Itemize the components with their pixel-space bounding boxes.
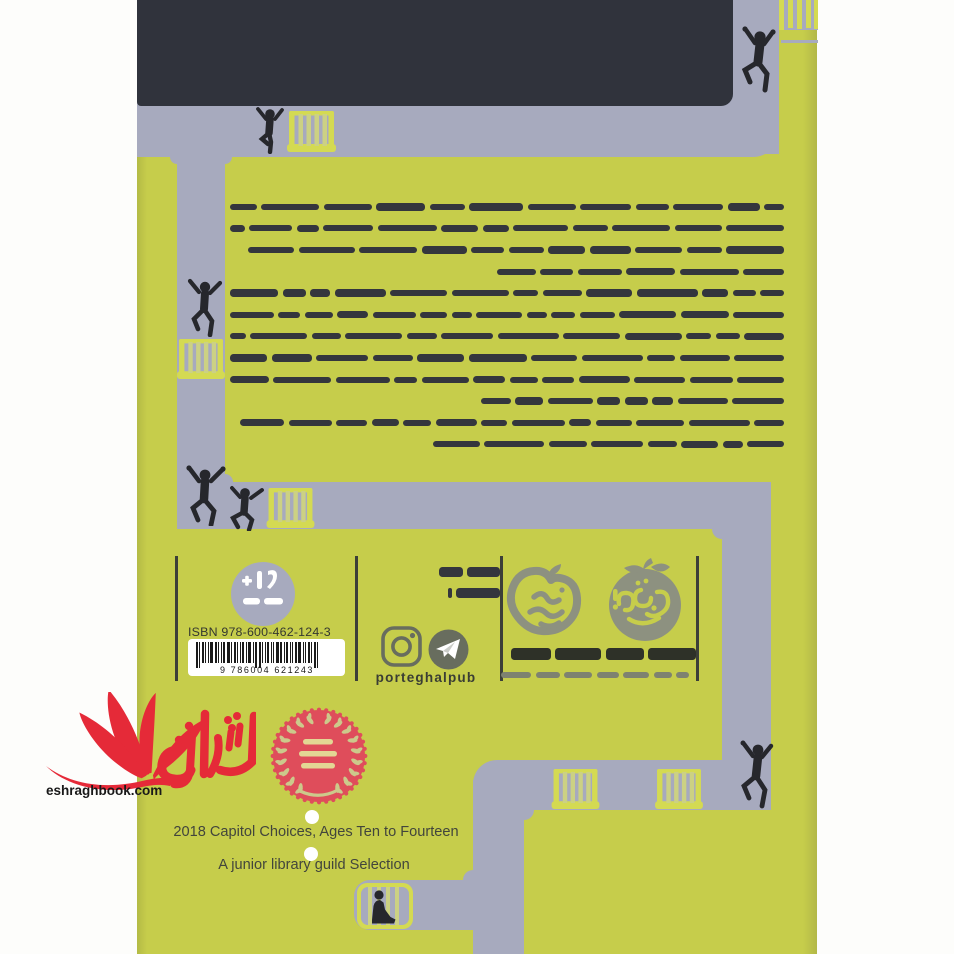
svg-text:9 786004 621243: 9 786004 621243 (220, 665, 314, 675)
